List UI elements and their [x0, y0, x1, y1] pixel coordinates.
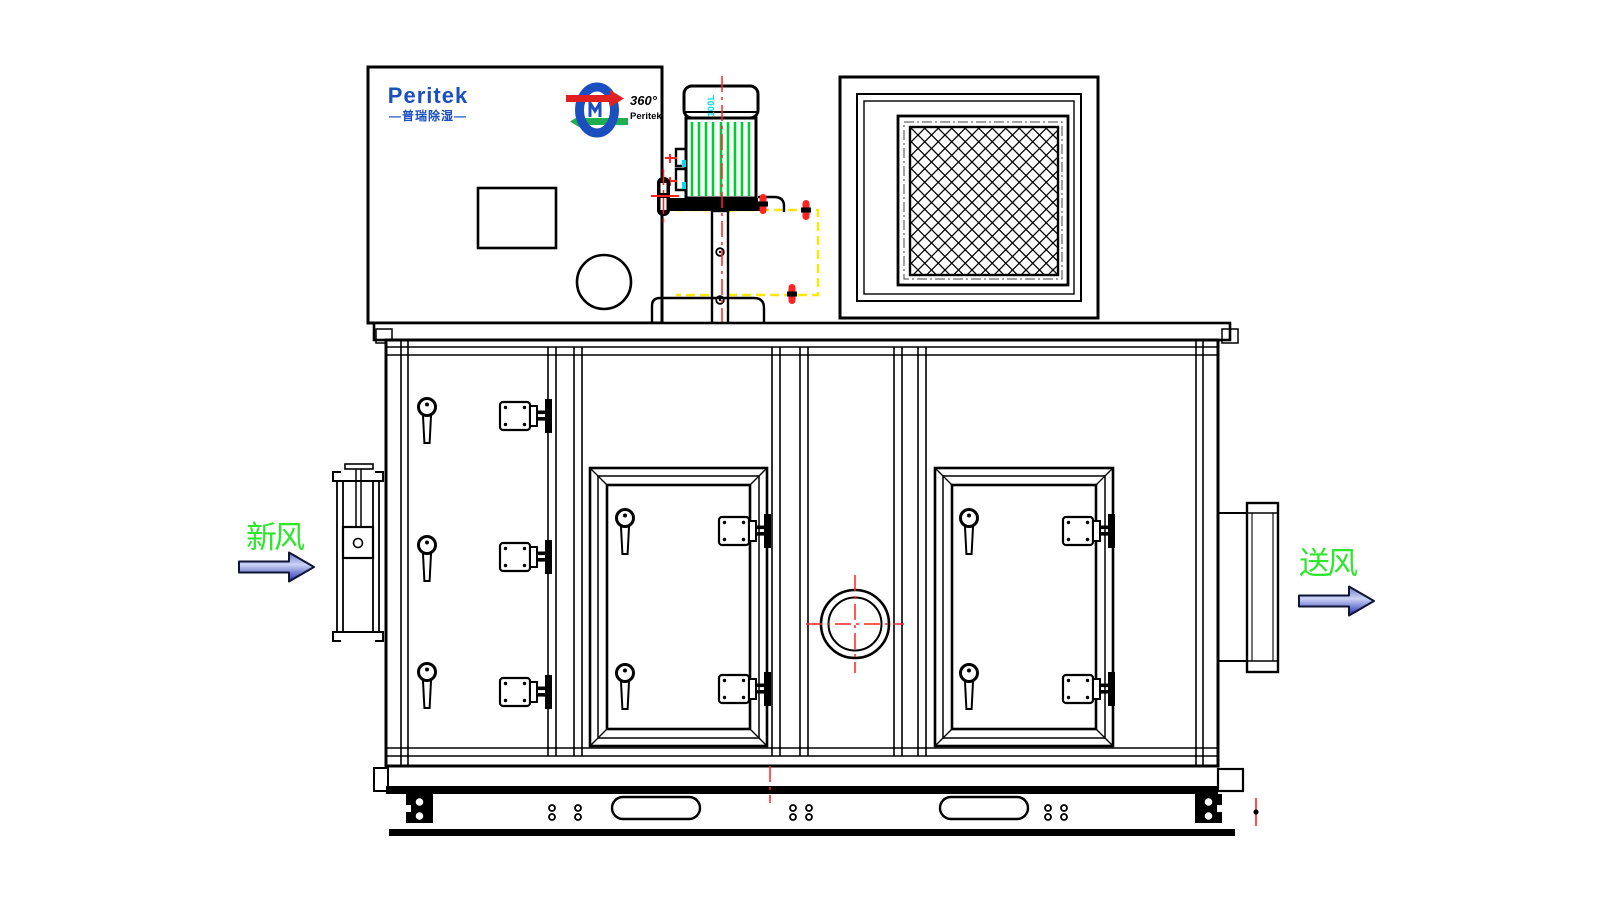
- foot-notch: [1217, 805, 1222, 812]
- dehumidifier-technical-drawing: Peritek —普瑞除湿— 360° Peritek D100L: [0, 0, 1613, 897]
- filter-mesh: [910, 127, 1058, 275]
- damper-rod: [356, 469, 361, 527]
- base-bolt-holes: [575, 805, 581, 820]
- foot-bolt-hole: [1205, 812, 1213, 820]
- base-bolt-holes: [549, 805, 555, 820]
- drawing-canvas: Peritek —普瑞除湿— 360° Peritek D100L: [0, 0, 1613, 897]
- supply-air-label: 送风: [1299, 546, 1358, 581]
- motor-fan-cowl: [684, 86, 758, 118]
- filter-grille-box: [840, 77, 1098, 318]
- base-top-channel: [386, 786, 1218, 794]
- right-access-door: [935, 468, 1115, 746]
- damper-t-handle: [345, 464, 373, 469]
- rotor-badge-brand-text: Peritek: [630, 111, 662, 122]
- corner-bolt-mark: [1253, 809, 1258, 814]
- fresh-air-label: 新风: [246, 520, 305, 555]
- peritek-logo-text: Peritek: [388, 83, 468, 108]
- foot-bolt-hole: [416, 798, 424, 806]
- peritek-logo-subtext: —普瑞除湿—: [389, 108, 467, 123]
- fresh-air-inlet: 新风: [239, 464, 383, 641]
- rotor-badge-angle-text: 360°: [630, 93, 658, 108]
- top-rim-band: [374, 323, 1230, 340]
- motor-assembly: D100L: [651, 76, 818, 334]
- outlet-duct-walls: [1218, 513, 1247, 661]
- middle-access-door: [590, 468, 771, 746]
- red-bolt: [801, 200, 811, 220]
- forklift-slot: [612, 797, 700, 819]
- red-bolt: [787, 284, 797, 304]
- base-bolt-holes: [1045, 805, 1051, 820]
- motor-support-column: [712, 211, 728, 330]
- base-bottom-rail: [389, 829, 1235, 836]
- base-bolt-holes: [790, 805, 796, 820]
- base-step-left: [374, 768, 388, 791]
- round-port: [577, 255, 631, 309]
- foot-bolt-hole: [1205, 798, 1213, 806]
- hidden-belt-housing-outline: [676, 210, 818, 295]
- control-panel-box: Peritek —普瑞除湿— 360° Peritek: [368, 67, 662, 323]
- supply-air-arrow-icon: [1299, 587, 1374, 616]
- foot-notch: [406, 805, 411, 812]
- door-outer-frame: [590, 468, 767, 746]
- base-frame: [374, 766, 1259, 836]
- fresh-air-arrow-icon: [239, 553, 314, 582]
- bolt-hole-center: [719, 251, 721, 253]
- damper-actuator-box: [343, 527, 373, 558]
- motor-base-plate: [657, 205, 764, 211]
- cyan-tick: [682, 182, 686, 189]
- forklift-slot: [940, 797, 1028, 819]
- base-bolt-holes: [1061, 805, 1067, 820]
- base-step-right: [1218, 769, 1243, 791]
- door-outer-frame: [935, 468, 1113, 746]
- motor-foot-plate: [664, 198, 758, 205]
- cyan-tick: [682, 160, 686, 167]
- nameplate: [478, 188, 556, 248]
- foot-bolt-hole: [416, 812, 424, 820]
- base-bolt-holes: [806, 805, 812, 820]
- supply-air-outlet: 送风: [1218, 503, 1374, 672]
